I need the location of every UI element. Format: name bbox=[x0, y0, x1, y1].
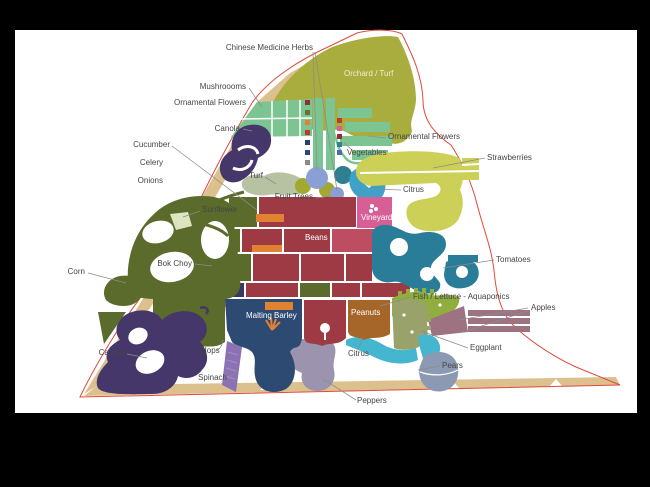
region-peanuts bbox=[348, 300, 390, 340]
label-apples: Apples bbox=[531, 304, 555, 312]
label-eggplant: Eggplant bbox=[470, 344, 502, 352]
label-pears: Pears bbox=[442, 362, 463, 370]
label-vegetables: Vegetables bbox=[347, 149, 387, 157]
label-corn: Corn bbox=[68, 268, 85, 276]
region-bottom-red-block bbox=[304, 300, 346, 346]
crop-mix-location-diagram: Chinese Medicine Herbs Mushroooms Orname… bbox=[0, 0, 650, 487]
label-cucumber: Cucumber bbox=[133, 141, 170, 149]
label-citrus-upper: Citrus bbox=[403, 186, 424, 194]
label-fruit-trees: Fruit Trees bbox=[275, 193, 313, 201]
label-spinach: Spinach bbox=[198, 374, 227, 382]
label-chinese-medicine-herbs: Chinese Medicine Herbs bbox=[226, 44, 313, 52]
label-orchard-turf: Orchard / Turf bbox=[344, 70, 393, 78]
label-tomatoes: Tomatoes bbox=[496, 256, 531, 264]
label-onions: Onions bbox=[138, 177, 163, 185]
region-pears bbox=[419, 352, 458, 392]
label-canola-lower: Canola bbox=[99, 349, 124, 357]
label-vineyard: Vineyard bbox=[361, 214, 392, 222]
label-peanuts: Peanuts bbox=[351, 309, 380, 317]
label-beans: Beans bbox=[305, 234, 328, 242]
label-celery: Celery bbox=[140, 159, 163, 167]
label-bok-choy: Bok Choy bbox=[157, 260, 192, 268]
label-ornamental-flowers-left: Ornamental Flowers bbox=[174, 99, 246, 107]
label-turf: Turf bbox=[249, 172, 263, 180]
label-sunflower: Sunflower bbox=[202, 206, 238, 214]
label-peppers: Peppers bbox=[357, 397, 387, 405]
label-mushrooms: Mushroooms bbox=[200, 83, 246, 91]
label-strawberries: Strawberries bbox=[487, 154, 532, 162]
label-citrus-lower: Citrus bbox=[348, 350, 369, 358]
label-hops: Hops bbox=[201, 347, 220, 355]
label-fish-lettuce-aquaponics: Fish / Lettuce - Aquaponics bbox=[413, 293, 510, 301]
label-ornamental-flowers-right: Ornamental Flowers bbox=[388, 133, 460, 141]
label-malting-barley: Malting Barley bbox=[246, 312, 297, 320]
caption-panel: Crop Mix Location Diagram The Agro-Botan… bbox=[0, 413, 650, 487]
label-canola-upper: Canola bbox=[215, 125, 240, 133]
